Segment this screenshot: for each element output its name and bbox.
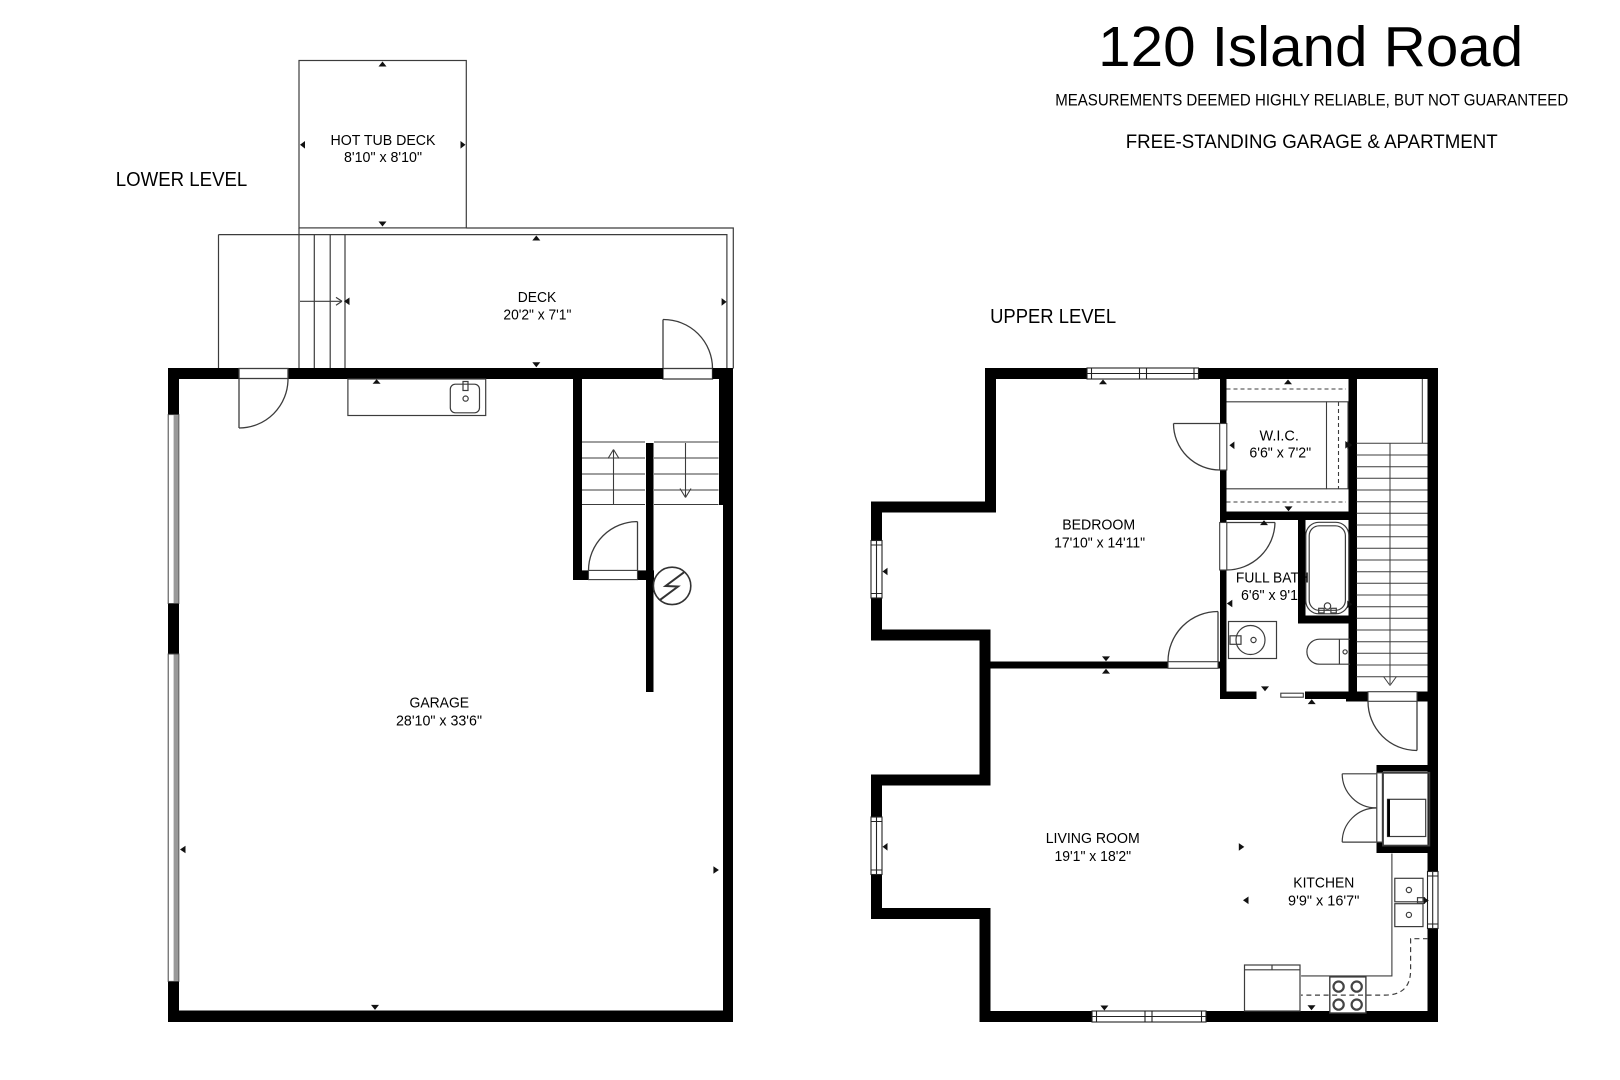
- svg-text:28'10" x 33'6": 28'10" x 33'6": [396, 712, 482, 729]
- svg-text:9'9" x 16'7": 9'9" x 16'7": [1288, 892, 1359, 909]
- svg-text:UPPER LEVEL: UPPER LEVEL: [990, 305, 1116, 328]
- svg-text:8'10" x 8'10": 8'10" x 8'10": [344, 149, 422, 166]
- svg-text:FULL BATH: FULL BATH: [1236, 569, 1309, 586]
- svg-text:20'2" x 7'1": 20'2" x 7'1": [503, 307, 571, 324]
- svg-text:6'6" x 7'2": 6'6" x 7'2": [1249, 445, 1311, 462]
- svg-text:17'10" x 14'11": 17'10" x 14'11": [1054, 534, 1145, 551]
- svg-text:DECK: DECK: [518, 289, 557, 306]
- svg-text:HOT TUB DECK: HOT TUB DECK: [331, 132, 436, 149]
- svg-text:GARAGE: GARAGE: [410, 695, 470, 712]
- svg-text:120 Island Road: 120 Island Road: [1098, 15, 1523, 79]
- svg-text:LOWER LEVEL: LOWER LEVEL: [116, 168, 248, 191]
- svg-text:KITCHEN: KITCHEN: [1293, 875, 1354, 892]
- svg-text:MEASUREMENTS DEEMED HIGHLY REL: MEASUREMENTS DEEMED HIGHLY RELIABLE, BUT…: [1055, 92, 1568, 110]
- svg-text:LIVING ROOM: LIVING ROOM: [1046, 830, 1140, 847]
- svg-text:W.I.C.: W.I.C.: [1259, 427, 1299, 444]
- svg-text:6'6" x 9'1": 6'6" x 9'1": [1241, 587, 1303, 604]
- svg-text:BEDROOM: BEDROOM: [1062, 517, 1135, 534]
- svg-text:FREE-STANDING GARAGE & APARTME: FREE-STANDING GARAGE & APARTMENT: [1126, 132, 1498, 153]
- svg-text:19'1" x 18'2": 19'1" x 18'2": [1054, 848, 1131, 865]
